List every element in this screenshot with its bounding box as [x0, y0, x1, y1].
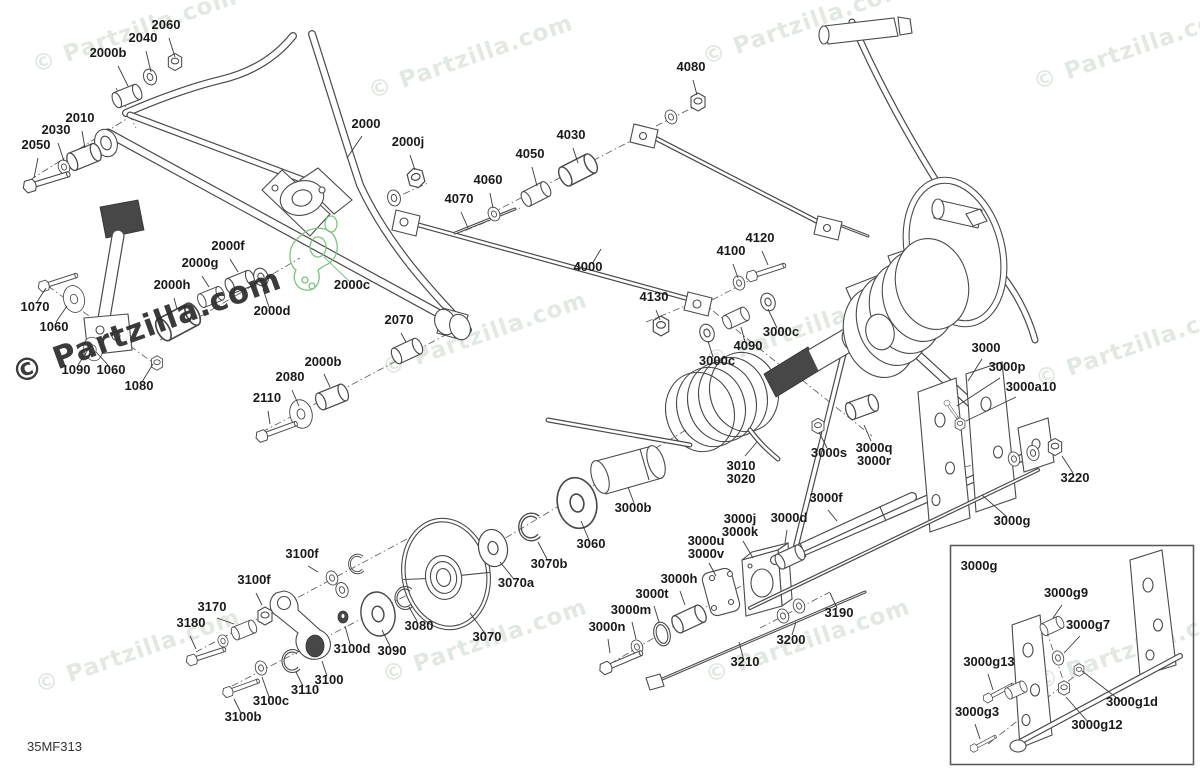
- leader-line: [733, 264, 738, 278]
- part-label: 4000: [574, 259, 603, 274]
- part-label: 3090: [378, 643, 407, 658]
- part-drawing: [955, 418, 965, 431]
- part-drawing: [282, 649, 300, 672]
- leader-line: [745, 442, 757, 456]
- part-drawing: [946, 462, 955, 474]
- part-label: 3000a10: [1006, 379, 1057, 394]
- part-label: 3000j3000k: [722, 511, 759, 539]
- part-drawing: 1080: [125, 378, 154, 393]
- part-drawing: 3000g3: [955, 704, 999, 719]
- part-drawing: [748, 564, 752, 568]
- part-label: 1070: [21, 299, 50, 314]
- part-drawing: [824, 225, 831, 232]
- part-drawing: 3000f: [809, 490, 843, 505]
- part-drawing: [1038, 615, 1065, 637]
- part-drawing: 3100b: [225, 709, 262, 724]
- part-label: 3000g7: [1066, 617, 1110, 632]
- part-label: 3000g9: [1044, 585, 1088, 600]
- parts-diagram-page: © Partzilla.com© Partzilla.com© Partzill…: [0, 0, 1200, 777]
- part-drawing: 3020: [727, 471, 756, 486]
- part-drawing: [932, 199, 944, 219]
- part-drawing: [842, 226, 868, 236]
- part-drawing: 1060: [40, 319, 69, 334]
- leader-line: [988, 674, 993, 690]
- part-label: 30103020: [727, 458, 756, 486]
- part-drawing: 3000n: [589, 619, 626, 634]
- part-label: 3100c: [253, 693, 289, 708]
- part-label: 2070: [385, 312, 414, 327]
- part-drawing: [812, 418, 824, 433]
- part-drawing: [745, 260, 787, 282]
- part-drawing: [185, 644, 227, 666]
- part-drawing: [309, 283, 315, 289]
- leader-line: [490, 193, 493, 208]
- part-drawing: [1146, 650, 1154, 660]
- part-drawing: [994, 446, 1003, 458]
- part-drawing: 4070: [445, 191, 474, 206]
- part-drawing: [1010, 740, 1026, 752]
- part-drawing: 2000c: [334, 277, 370, 292]
- part-drawing: 2070: [385, 312, 414, 327]
- part-drawing: [1023, 643, 1033, 657]
- part-label: 3210: [731, 654, 760, 669]
- part-drawing: [721, 306, 752, 330]
- part-drawing: [358, 589, 399, 638]
- part-drawing: 2110: [253, 390, 281, 405]
- part-drawing: [669, 603, 708, 634]
- part-drawing: [701, 567, 741, 617]
- part-drawing: 4060: [474, 172, 503, 187]
- part-drawing: [843, 393, 880, 421]
- watermark: © Partzilla.com: [365, 10, 577, 105]
- part-drawing: 4080: [677, 59, 706, 74]
- watermark-layer: © Partzilla.com© Partzilla.com© Partzill…: [29, 0, 1200, 699]
- part-drawing: [710, 576, 715, 581]
- part-label: 3070a: [498, 575, 535, 590]
- part-drawing: 3060: [577, 536, 606, 551]
- part-label: 3100d: [334, 641, 371, 656]
- part-drawing: 3000k: [722, 524, 759, 539]
- part-label: 2000g: [182, 255, 219, 270]
- part-drawing: [691, 93, 705, 111]
- leader-line: [1064, 636, 1080, 653]
- part-drawing: [272, 185, 278, 191]
- leader-line: [118, 66, 128, 86]
- part-drawing: [651, 620, 673, 647]
- part-drawing: 3000r: [857, 453, 891, 468]
- part-drawing: 4120: [746, 230, 775, 245]
- part-drawing: [712, 606, 717, 611]
- part-label: 3070b: [531, 556, 568, 571]
- part-drawing: [65, 142, 104, 172]
- part-drawing: 4050: [516, 146, 545, 161]
- part-label: 4090: [734, 338, 763, 353]
- leader-line: [58, 143, 64, 161]
- part-drawing: [400, 218, 408, 226]
- part-drawing: 3000g: [961, 558, 998, 573]
- part-drawing: 2000g: [182, 255, 219, 270]
- leader-line: [308, 566, 318, 572]
- part-drawing: [969, 733, 998, 753]
- leader-line: [762, 251, 768, 265]
- watermark: © Partzilla.com: [1032, 601, 1200, 696]
- part-label: 3000c: [699, 353, 735, 368]
- part-drawing: 2000h: [154, 277, 191, 292]
- watermark: © Partzilla.com: [1030, 1, 1200, 96]
- part-drawing: 3000m: [611, 602, 651, 617]
- leader-line: [693, 80, 697, 95]
- leader-line: [34, 158, 38, 178]
- part-drawing: 2040: [129, 30, 158, 45]
- leader-line: [410, 155, 415, 170]
- leader-line: [532, 167, 537, 186]
- part-label: 2050: [22, 137, 51, 152]
- part-drawing: 4030: [557, 127, 586, 142]
- part-drawing: [935, 413, 945, 427]
- part-drawing: [1143, 578, 1153, 592]
- part-label: 3000g: [961, 558, 998, 573]
- part-label: 2080: [276, 369, 305, 384]
- part-label: 3220: [1061, 470, 1090, 485]
- part-label: 4120: [746, 230, 775, 245]
- part-drawing: 3080: [405, 618, 434, 633]
- part-label: 2000h: [154, 277, 191, 292]
- part-drawing: 3200: [777, 632, 806, 647]
- part-drawing: 3180: [177, 615, 206, 630]
- leader-line: [461, 212, 468, 228]
- part-drawing: 3000g12: [1071, 717, 1122, 732]
- part-drawing: [319, 187, 325, 193]
- part-drawing: 3000: [972, 340, 1001, 355]
- part-label: 3000n: [589, 619, 626, 634]
- part-drawing: 1070: [21, 299, 50, 314]
- part-drawing: [751, 569, 773, 597]
- part-drawing: 3000s: [811, 445, 847, 460]
- part-label: 3190: [825, 605, 854, 620]
- part-drawing: [258, 607, 272, 625]
- part-drawing: 3000v: [688, 546, 725, 561]
- part-label: 1060: [97, 362, 126, 377]
- part-drawing: [278, 597, 291, 610]
- part-label: 3000u3000v: [688, 533, 725, 561]
- part-drawing: 3000c: [699, 353, 735, 368]
- part-label: 2060: [152, 17, 181, 32]
- part-label: 2030: [42, 122, 71, 137]
- part-drawing: [1074, 664, 1084, 677]
- part-drawing: [302, 277, 308, 283]
- part-drawing: [341, 614, 345, 619]
- part-label: 3000f: [809, 490, 843, 505]
- part-label: 3000g3: [955, 704, 999, 719]
- part-drawing: [406, 166, 426, 189]
- part-label: 3000: [972, 340, 1001, 355]
- leader-line: [401, 333, 406, 342]
- part-drawing: 2080: [276, 369, 305, 384]
- part-label: 3000g13: [963, 654, 1014, 669]
- part-drawing: 2050: [22, 137, 51, 152]
- part-label: 3000b: [615, 500, 652, 515]
- part-drawing: 3000g7: [1066, 617, 1110, 632]
- part-label: 3000s: [811, 445, 847, 460]
- watermark: © Partzilla.com: [1032, 298, 1200, 393]
- part-label: 2000: [352, 116, 381, 131]
- part-drawing: 3000g13: [963, 654, 1014, 669]
- part-drawing: [655, 138, 830, 228]
- part-drawing: [693, 300, 701, 308]
- leader-line: [169, 38, 175, 57]
- part-drawing: 2000d: [254, 303, 291, 318]
- part-label: 3170: [198, 599, 227, 614]
- part-drawing: [548, 420, 690, 445]
- part-drawing: [728, 572, 733, 577]
- part-drawing: [791, 597, 806, 614]
- part-drawing: 3220: [1061, 470, 1090, 485]
- part-drawing: [653, 316, 668, 336]
- part-drawing: [519, 513, 541, 541]
- part-label: 2000d: [254, 303, 291, 318]
- part-label: 3110: [291, 682, 319, 697]
- part-drawing: 1060: [97, 362, 126, 377]
- leader-line: [864, 425, 871, 441]
- part-drawing: [697, 322, 716, 344]
- part-label: 3000q3000r: [856, 440, 893, 468]
- part-label: 1080: [125, 378, 154, 393]
- part-drawing: [556, 152, 600, 188]
- part-drawing: [386, 189, 402, 208]
- part-drawing: 2000f: [211, 238, 245, 253]
- part-drawing: 2000: [352, 116, 381, 131]
- part-drawing: [598, 647, 645, 676]
- exploded-parts-diagram: © Partzilla.com© Partzilla.com© Partzill…: [0, 0, 1200, 777]
- part-drawing: [819, 26, 829, 44]
- part-label: 4130: [640, 289, 669, 304]
- part-drawing: [141, 67, 159, 87]
- leader-line: [82, 131, 85, 148]
- part-drawing: [646, 674, 664, 690]
- part-drawing: 3100f: [237, 572, 271, 587]
- part-label: 3200: [777, 632, 806, 647]
- part-label: 2040: [129, 30, 158, 45]
- part-drawing: [455, 209, 515, 233]
- part-drawing: 3000h: [661, 571, 698, 586]
- part-drawing: 3000d: [771, 510, 808, 525]
- leader-line: [632, 622, 636, 639]
- part-label: 3000h: [661, 571, 698, 586]
- part-drawing: [640, 133, 647, 140]
- part-drawing: 3000a10: [1006, 379, 1057, 394]
- part-drawing: [657, 365, 743, 460]
- part-label: 3100f: [237, 572, 271, 587]
- part-label: 4080: [677, 59, 706, 74]
- part-label: 3000t: [635, 586, 669, 601]
- leader-line: [654, 606, 659, 622]
- part-drawing: 3190: [825, 605, 854, 620]
- part-label: 2000b: [305, 354, 342, 369]
- part-drawing: 3000p: [989, 359, 1026, 374]
- part-label: 2000c: [334, 277, 370, 292]
- part-drawing: 2030: [42, 122, 71, 137]
- part-drawing: 3000b: [615, 500, 652, 515]
- part-label: 3080: [405, 618, 434, 633]
- part-drawing: 2060: [152, 17, 181, 32]
- part-drawing: 4000: [574, 259, 603, 274]
- part-label: 3100f: [285, 546, 319, 561]
- part-drawing: 3110: [291, 682, 319, 697]
- part-drawing: 4090: [734, 338, 763, 353]
- part-drawing: 2000b: [305, 354, 342, 369]
- part-drawing: 3000t: [635, 586, 669, 601]
- part-drawing: 3070b: [531, 556, 568, 571]
- part-drawing: 2000j: [392, 134, 425, 149]
- leader-line: [268, 411, 270, 424]
- part-label: 3180: [177, 615, 206, 630]
- part-label: 3070: [473, 629, 502, 644]
- part-drawing: [151, 356, 162, 370]
- part-drawing: 3000g1d: [1106, 694, 1158, 709]
- part-drawing: 4130: [640, 289, 669, 304]
- part-drawing: 3090: [378, 643, 407, 658]
- part-drawing: [981, 397, 991, 411]
- part-label: 3000g1d: [1106, 694, 1158, 709]
- part-drawing: 2000b: [90, 45, 127, 60]
- part-drawing: [349, 554, 364, 574]
- part-label: 3100b: [225, 709, 262, 724]
- part-drawing: [1022, 715, 1030, 726]
- part-drawing: 3210: [731, 654, 760, 669]
- part-label: 3000g: [994, 513, 1031, 528]
- part-label: 3000g12: [1071, 717, 1122, 732]
- part-drawing: 3000g: [994, 513, 1031, 528]
- leader-line: [785, 530, 787, 543]
- leader-line: [828, 510, 837, 521]
- part-label: 4070: [445, 191, 474, 206]
- part-drawing: [775, 607, 790, 624]
- part-label: 2000j: [392, 134, 425, 149]
- part-drawing: [1031, 684, 1040, 696]
- part-drawing: [313, 383, 350, 412]
- part-drawing: [731, 274, 746, 291]
- part-drawing: [663, 108, 679, 126]
- part-drawing: 4100: [717, 243, 746, 258]
- part-label: 2000b: [90, 45, 127, 60]
- part-label: 4100: [717, 243, 746, 258]
- part-drawing: 3000c: [763, 324, 799, 339]
- part-label: 4030: [557, 127, 586, 142]
- part-label: 3000d: [771, 510, 808, 525]
- part-drawing: [1154, 619, 1163, 631]
- part-label: 4050: [516, 146, 545, 161]
- part-label: 3000c: [763, 324, 799, 339]
- leader-line: [680, 591, 685, 605]
- part-drawing: [750, 430, 778, 459]
- part-drawing: [306, 635, 324, 657]
- part-drawing: [325, 216, 337, 232]
- part-label: 4060: [474, 172, 503, 187]
- leader-line: [324, 374, 330, 387]
- part-drawing: [932, 495, 940, 506]
- leader-line: [608, 639, 610, 653]
- part-drawing: [519, 180, 553, 208]
- leader-line: [230, 259, 238, 272]
- part-drawing: [1058, 681, 1069, 695]
- part-drawing: 3070: [473, 629, 502, 644]
- part-drawing: [898, 17, 912, 35]
- part-drawing: 3000g9: [1044, 585, 1088, 600]
- part-drawing: 3100c: [253, 693, 289, 708]
- diagram-code: 35MF313: [27, 739, 82, 754]
- part-label: 2000f: [211, 238, 245, 253]
- part-drawing: 3100d: [334, 641, 371, 656]
- part-label: 2110: [253, 390, 281, 405]
- part-drawing: [750, 470, 1038, 608]
- part-label: 3060: [577, 536, 606, 551]
- part-label: 3000p: [989, 359, 1026, 374]
- part-drawing: 3100f: [285, 546, 319, 561]
- part-label: 1060: [40, 319, 69, 334]
- leader-line: [975, 724, 980, 739]
- part-drawing: [130, 115, 330, 190]
- part-drawing: [254, 660, 269, 677]
- leader-line: [256, 593, 262, 605]
- part-drawing: [729, 600, 734, 605]
- part-drawing: 3070a: [498, 575, 535, 590]
- part-label: 3000m: [611, 602, 651, 617]
- part-drawing: 3170: [198, 599, 227, 614]
- part-drawing: [1048, 438, 1061, 455]
